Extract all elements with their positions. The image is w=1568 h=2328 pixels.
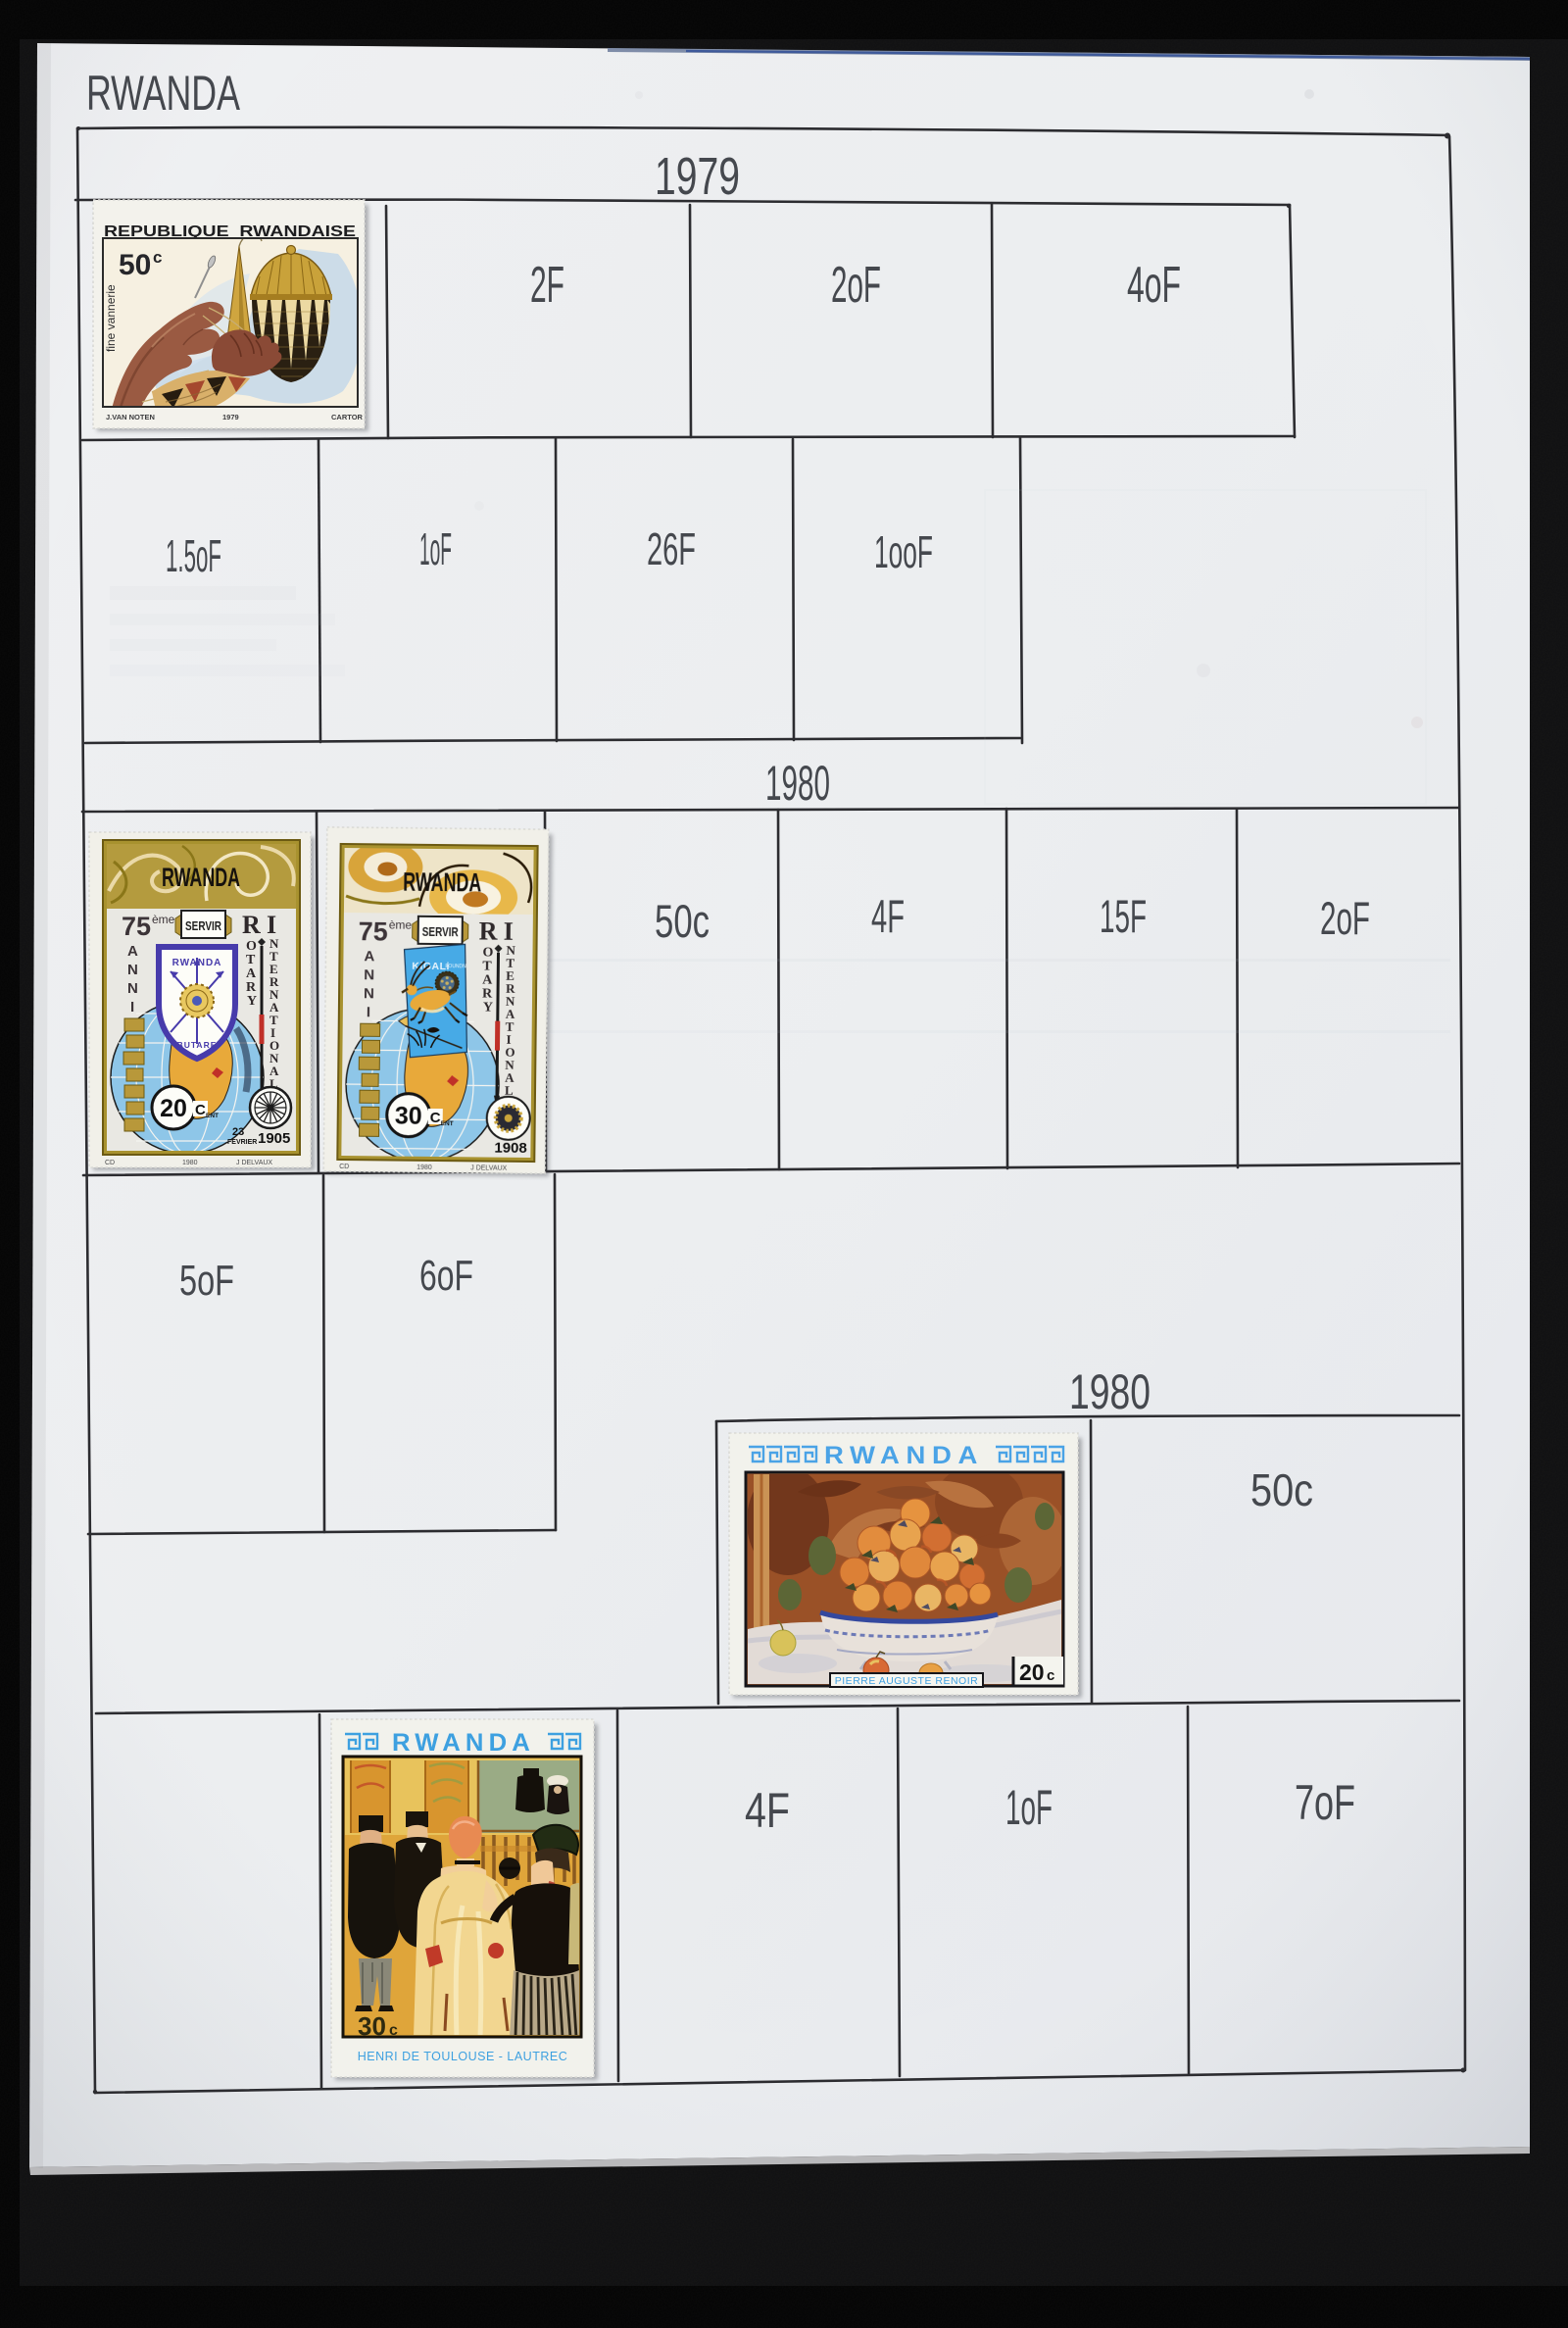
svg-text:A: A — [364, 948, 374, 965]
svg-text:4F: 4F — [745, 1783, 790, 1838]
svg-text:ENT: ENT — [206, 1113, 219, 1119]
svg-text:Y: Y — [483, 1001, 493, 1015]
svg-text:7oF: 7oF — [1295, 1775, 1355, 1830]
svg-text:FOUNDN: FOUNDN — [445, 964, 466, 969]
svg-text:1oF: 1oF — [419, 523, 452, 574]
svg-text:FEVRIER: FEVRIER — [227, 1139, 257, 1146]
svg-text:c: c — [1047, 1667, 1054, 1684]
svg-text:RWANDA: RWANDA — [403, 867, 481, 898]
svg-text:R: R — [242, 911, 261, 939]
svg-text:ème: ème — [152, 913, 175, 926]
svg-text:15F: 15F — [1100, 890, 1147, 942]
svg-text:I: I — [367, 1004, 370, 1020]
svg-text:20: 20 — [160, 1095, 187, 1122]
svg-text:1ooF: 1ooF — [874, 526, 933, 577]
svg-text:30: 30 — [395, 1103, 422, 1130]
svg-text:BUTARE: BUTARE — [177, 1040, 218, 1050]
svg-text:J.VAN NOTEN: J.VAN NOTEN — [106, 413, 155, 421]
svg-text:C: C — [195, 1102, 206, 1118]
svg-text:SERVIR: SERVIR — [422, 924, 460, 939]
svg-text:R: R — [479, 916, 498, 945]
svg-text:N: N — [364, 966, 374, 983]
svg-text:A: A — [127, 943, 138, 960]
svg-text:C: C — [430, 1110, 441, 1126]
svg-text:T: T — [482, 959, 492, 973]
svg-text:ENT: ENT — [441, 1120, 454, 1127]
svg-text:30: 30 — [358, 2011, 386, 2041]
svg-text:1.5oF: 1.5oF — [166, 530, 221, 581]
svg-text:c: c — [153, 248, 162, 267]
svg-text:SERVIR: SERVIR — [185, 918, 221, 933]
svg-text:5oF: 5oF — [179, 1257, 234, 1305]
svg-text:1oF: 1oF — [1005, 1780, 1053, 1835]
svg-text:26F: 26F — [647, 523, 696, 574]
svg-text:N: N — [127, 962, 138, 978]
svg-text:4oF: 4oF — [1127, 257, 1181, 314]
svg-text:fine vannerie: fine vannerie — [104, 284, 118, 352]
svg-text:I: I — [267, 911, 276, 939]
svg-text:L: L — [505, 1083, 514, 1098]
svg-text:RWANDA: RWANDA — [162, 863, 240, 892]
svg-text:RWANDA: RWANDA — [86, 66, 240, 121]
svg-text:RWANDA: RWANDA — [824, 1442, 984, 1469]
svg-text:I: I — [504, 917, 514, 946]
svg-text:CARTOR: CARTOR — [331, 413, 364, 421]
svg-text:R: R — [482, 986, 493, 1001]
svg-text:Y: Y — [247, 994, 257, 1009]
svg-text:A: A — [246, 966, 257, 981]
svg-text:2F: 2F — [530, 257, 564, 314]
svg-text:2oF: 2oF — [831, 257, 881, 314]
svg-text:N: N — [127, 980, 138, 997]
svg-text:R: R — [246, 980, 257, 995]
svg-text:1980: 1980 — [1069, 1364, 1151, 1419]
svg-text:20: 20 — [1019, 1659, 1045, 1685]
svg-text:1905: 1905 — [258, 1130, 290, 1147]
svg-text:6oF: 6oF — [419, 1252, 473, 1300]
svg-text:1980: 1980 — [182, 1160, 198, 1166]
svg-text:HENRI DE TOULOUSE - LAUTREC: HENRI DE TOULOUSE - LAUTREC — [358, 2050, 567, 2063]
svg-text:J DELVAUX: J DELVAUX — [236, 1160, 272, 1166]
svg-text:1908: 1908 — [494, 1140, 527, 1157]
svg-text:75: 75 — [359, 916, 388, 946]
svg-text:O: O — [246, 939, 257, 954]
svg-text:4F: 4F — [871, 890, 905, 942]
svg-text:50c: 50c — [1250, 1464, 1313, 1515]
svg-text:c: c — [389, 2022, 398, 2039]
svg-text:J DELVAUX: J DELVAUX — [470, 1164, 507, 1171]
svg-text:RWANDA: RWANDA — [392, 1729, 535, 1757]
svg-text:CD: CD — [105, 1160, 115, 1166]
svg-text:O: O — [482, 945, 493, 960]
svg-text:1980: 1980 — [765, 756, 830, 811]
svg-text:1980: 1980 — [416, 1164, 432, 1171]
svg-text:50: 50 — [119, 249, 151, 281]
svg-text:2oF: 2oF — [1320, 892, 1370, 944]
svg-text:N: N — [364, 985, 374, 1002]
svg-text:50c: 50c — [655, 895, 710, 947]
svg-text:PIERRE AUGUSTE RENOIR: PIERRE AUGUSTE RENOIR — [835, 1675, 978, 1687]
svg-text:T: T — [246, 953, 256, 967]
svg-text:CD: CD — [339, 1164, 349, 1170]
svg-text:75: 75 — [122, 912, 151, 941]
svg-text:23: 23 — [232, 1126, 244, 1138]
svg-text:A: A — [482, 972, 493, 987]
svg-text:ème: ème — [389, 917, 413, 931]
svg-text:I: I — [130, 999, 134, 1015]
svg-text:1979: 1979 — [655, 147, 740, 206]
svg-text:1979: 1979 — [222, 413, 239, 421]
